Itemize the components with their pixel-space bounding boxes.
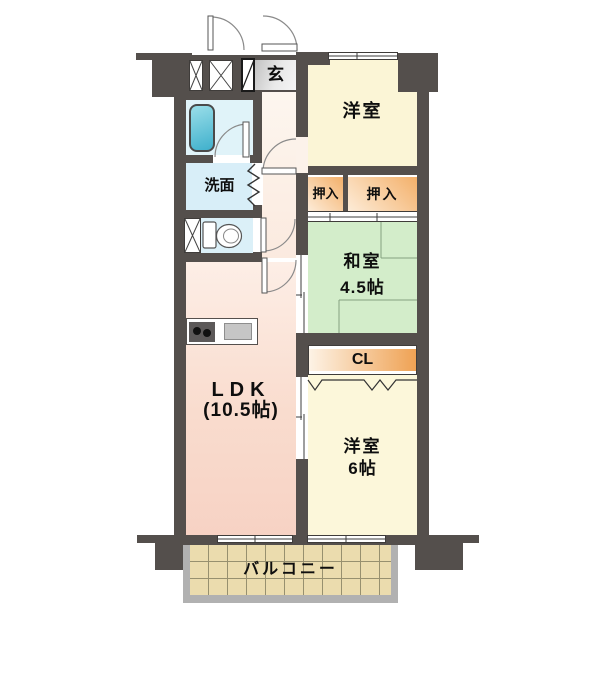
japanese-room-label: 和室 — [308, 250, 417, 274]
pipe-space-box — [184, 218, 201, 253]
oshiire-right-label: 押入 — [348, 182, 417, 206]
shoe-cabinet — [241, 58, 255, 92]
wall-segment — [136, 53, 152, 60]
bathtub — [189, 104, 215, 152]
doorway-bedroom-north — [296, 137, 308, 173]
bedroom-south-size-label: 6帖 — [308, 458, 417, 480]
cl-label: CL — [308, 345, 417, 375]
wall-pillar-top-right — [398, 53, 438, 92]
sliding-door-fusuma — [308, 211, 417, 222]
accordion-doorway-washroom — [252, 163, 263, 205]
wall-segment — [186, 210, 262, 218]
floor-plan: バルコニー — [0, 0, 600, 676]
door-leaf — [262, 44, 297, 51]
wall-segment — [308, 333, 417, 345]
meter-box — [189, 60, 203, 91]
wall-pillar-bottom-right — [415, 535, 463, 570]
wall-segment — [308, 166, 417, 175]
oshiire-left-label: 押入 — [308, 182, 343, 206]
wall-segment — [174, 253, 262, 262]
wall-outer-left — [174, 97, 186, 545]
ldk-label: LDK — [186, 379, 296, 401]
ldk-size-label: (10.5帖) — [180, 401, 302, 421]
kitchen-stove — [189, 322, 215, 342]
doorway-bathroom — [213, 155, 250, 163]
door-leaf — [208, 16, 213, 50]
balcony: バルコニー — [183, 545, 398, 603]
doorway-toilet — [253, 218, 262, 252]
window-balcony-left — [217, 535, 293, 543]
balcony-label: バルコニー — [190, 545, 391, 595]
meter-box — [209, 60, 233, 91]
hallway — [262, 92, 296, 258]
bedroom-south-label: 洋室 — [308, 436, 417, 458]
genkan-label: 玄 — [255, 60, 296, 90]
wall-outer-right — [417, 92, 429, 545]
window-balcony-right — [307, 535, 386, 543]
sliding-doorway-japanese-room — [296, 255, 308, 333]
door-arc-entry-small — [211, 17, 244, 50]
bedroom-north-label: 洋室 — [308, 98, 417, 124]
door-arc-entry-main — [263, 16, 297, 50]
washroom-label: 洗面 — [186, 172, 253, 200]
wall-segment — [296, 52, 330, 65]
kitchen-sink — [224, 323, 252, 340]
window-north — [328, 52, 398, 60]
wall-segment — [463, 535, 479, 543]
japanese-room-size-label: 4.5帖 — [308, 276, 417, 300]
wall-segment — [137, 535, 155, 543]
